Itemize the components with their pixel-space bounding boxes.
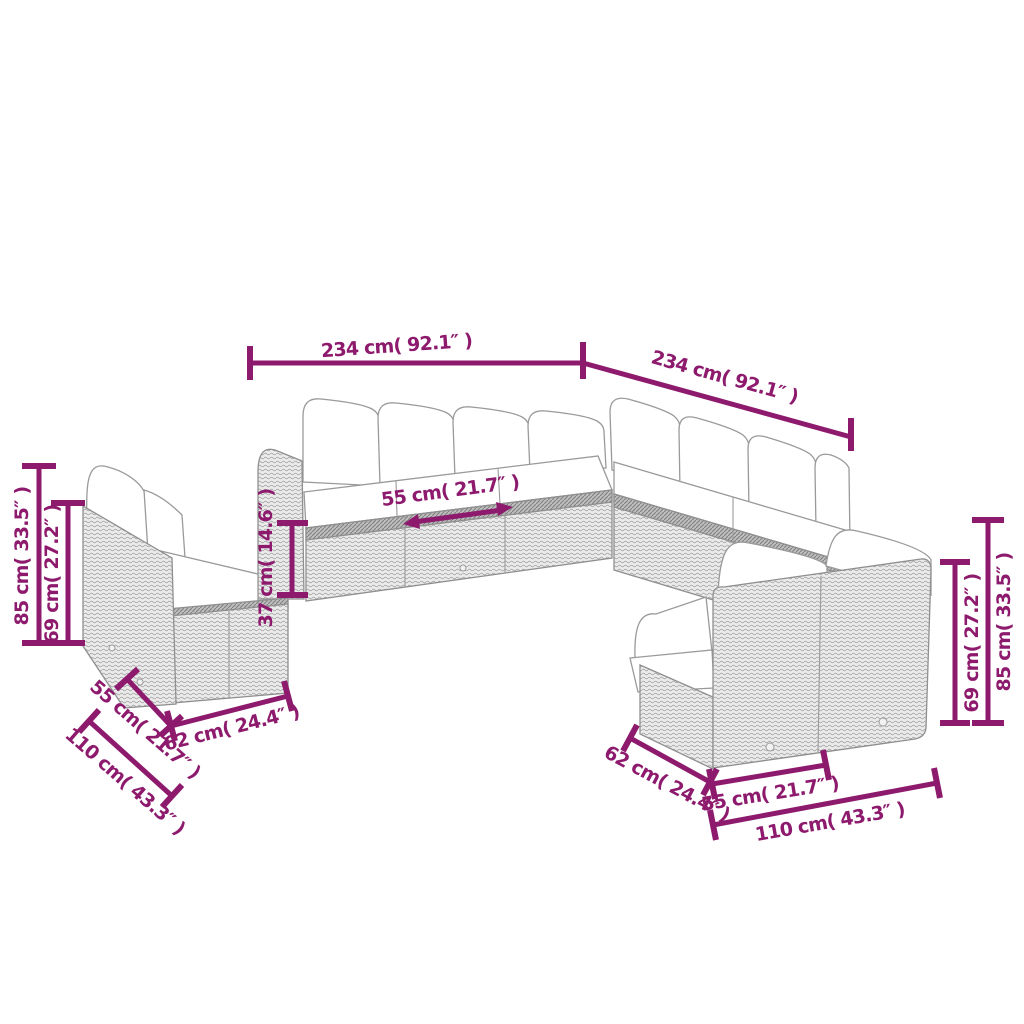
- dim-label-right-back-height: 69 cm( 27.2″ ): [961, 573, 983, 712]
- dim-label-seat-height: 37 cm( 14.6″ ): [255, 488, 277, 627]
- product-dimension-diagram: 234 cm( 92.1″ ) 234 cm( 92.1″ ) 85 cm( 3…: [0, 0, 1024, 1024]
- furniture-diagram-svg: 234 cm( 92.1″ ) 234 cm( 92.1″ ) 85 cm( 3…: [0, 0, 1024, 1024]
- dim-label-left-back-height: 69 cm( 27.2″ ): [41, 504, 63, 643]
- dim-label-right-total-height: 85 cm( 33.5″ ): [993, 552, 1015, 691]
- dim-label-left-total-height: 85 cm( 33.5″ ): [11, 486, 33, 625]
